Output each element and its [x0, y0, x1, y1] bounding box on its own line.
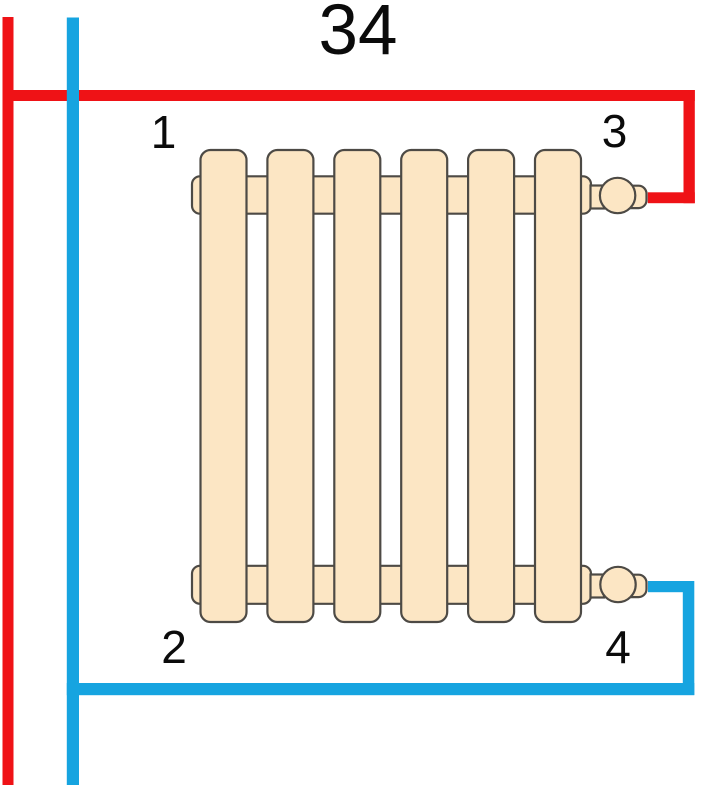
svg-text:34: 34: [319, 0, 398, 70]
svg-text:4: 4: [605, 621, 631, 673]
svg-text:3: 3: [602, 105, 628, 157]
svg-text:2: 2: [161, 621, 187, 673]
svg-text:1: 1: [151, 106, 177, 158]
